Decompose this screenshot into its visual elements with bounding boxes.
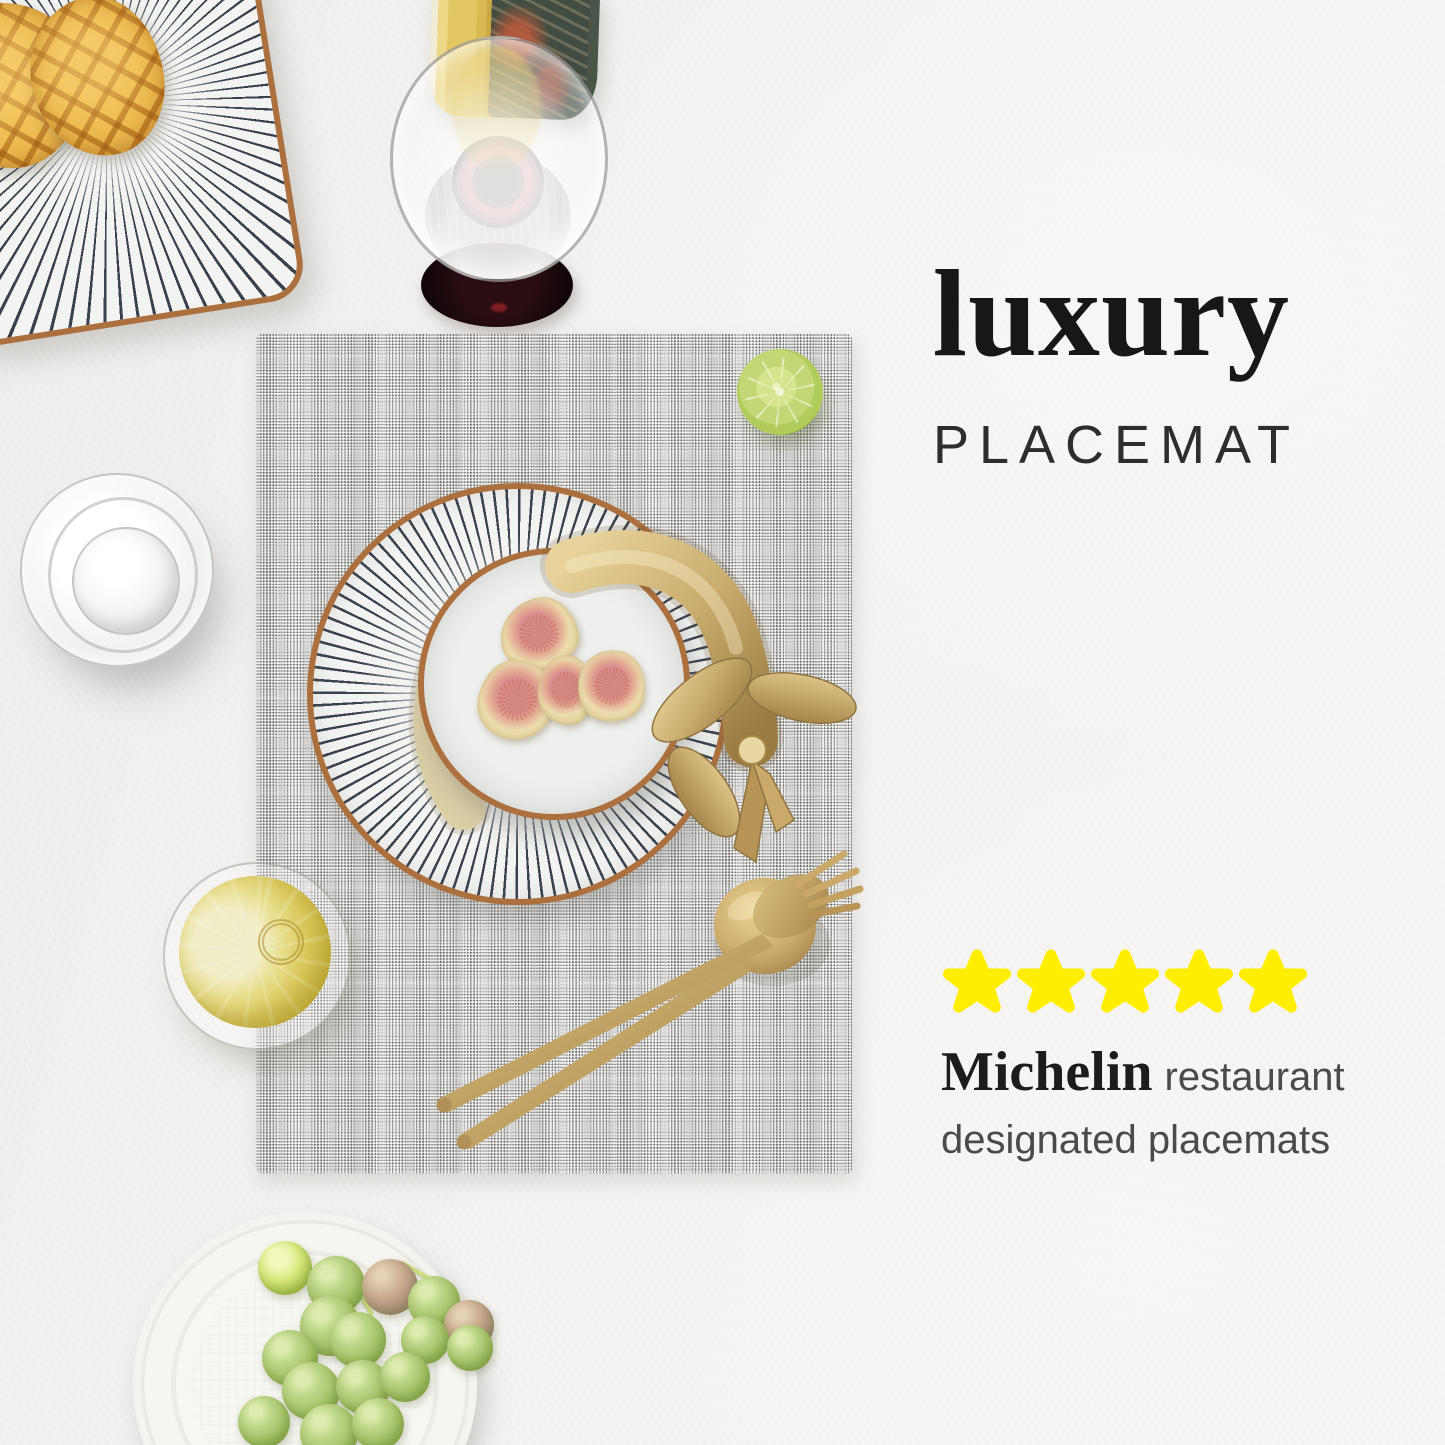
star-icon [1015, 948, 1087, 1016]
water-glass [20, 473, 214, 667]
star-icon [1089, 948, 1161, 1016]
star-icon [941, 948, 1013, 1016]
caption-line2: designated placemats [941, 1118, 1401, 1162]
caption-line1: Michelinrestaurant [941, 1040, 1401, 1104]
product-photo-scene: luxury PLACEMAT Michelinrestaurant desig… [0, 0, 1445, 1445]
red-wine-glass-rim [390, 36, 608, 282]
waffle-plate [0, 0, 308, 351]
grape [380, 1352, 430, 1402]
headline: luxury [933, 252, 1290, 376]
grape [352, 1398, 404, 1445]
white-wine-glass [163, 862, 351, 1050]
star-icon [1237, 948, 1309, 1016]
rating-caption-block: Michelinrestaurant designated placemats [941, 948, 1401, 1162]
grape [238, 1396, 290, 1445]
water-glass-inner [72, 527, 180, 635]
grape [447, 1325, 493, 1371]
grape [258, 1241, 312, 1295]
star-rating [941, 948, 1401, 1018]
white-wine [179, 876, 331, 1028]
subheadline: PLACEMAT [933, 418, 1300, 472]
waffle [20, 0, 175, 166]
star-icon [1163, 948, 1235, 1016]
caption-suffix: restaurant [1165, 1055, 1345, 1099]
lime-half [737, 349, 823, 435]
caption-brand: Michelin [941, 1041, 1153, 1103]
